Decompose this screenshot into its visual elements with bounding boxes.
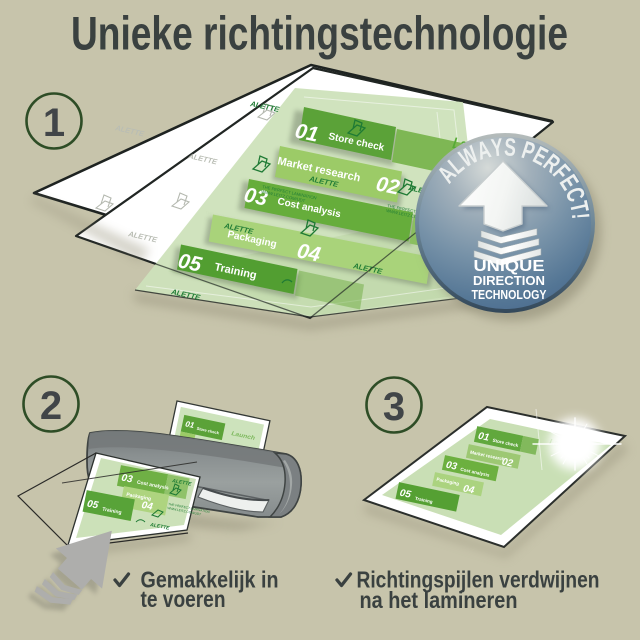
svg-text:Unieke richtingstechnologie: Unieke richtingstechnologie	[71, 7, 568, 60]
svg-text:3: 3	[383, 385, 405, 429]
svg-text:2: 2	[40, 384, 62, 428]
svg-text:01: 01	[293, 119, 321, 146]
svg-text:1: 1	[43, 101, 65, 145]
svg-text:te voeren: te voeren	[141, 586, 226, 612]
svg-text:TECHNOLOGY: TECHNOLOGY	[472, 288, 548, 302]
svg-text:S: S	[503, 132, 517, 162]
svg-text:na het lamineren: na het lamineren	[360, 587, 518, 613]
svg-text:DIRECTION: DIRECTION	[473, 273, 545, 288]
